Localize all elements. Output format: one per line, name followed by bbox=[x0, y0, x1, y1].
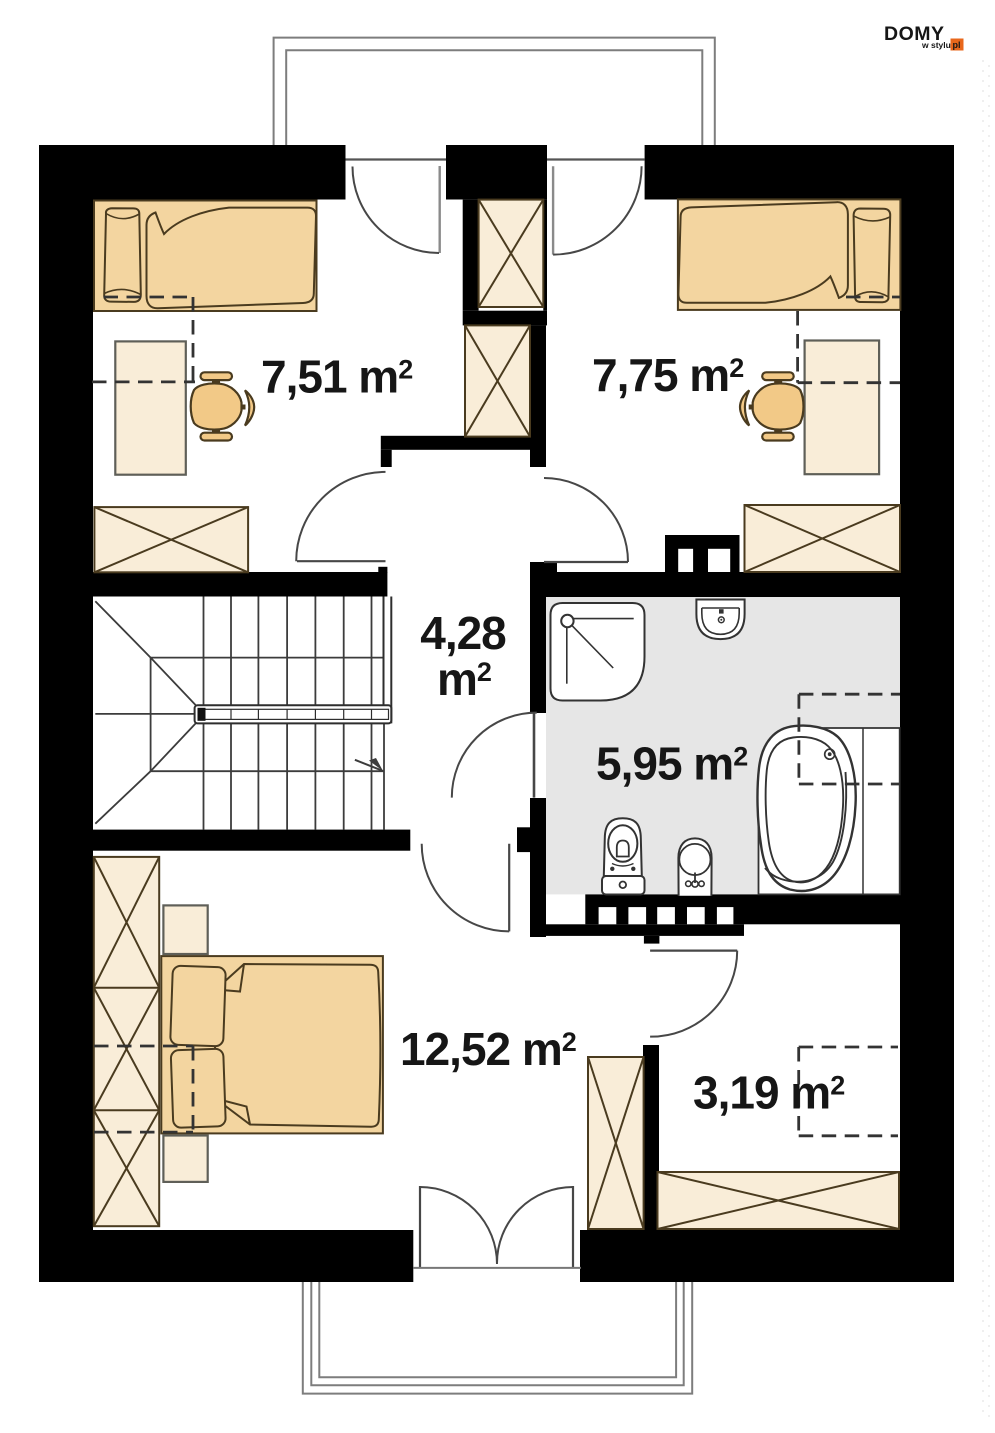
svg-text:7,51 m2: 7,51 m2 bbox=[261, 350, 412, 402]
svg-text:w stylu: w stylu bbox=[921, 40, 951, 50]
svg-text:5,95 m2: 5,95 m2 bbox=[596, 737, 747, 789]
svg-text:pl: pl bbox=[953, 40, 961, 50]
svg-text:4,28: 4,28 bbox=[420, 607, 506, 659]
svg-text:7,75 m2: 7,75 m2 bbox=[592, 349, 743, 401]
svg-text:3,19 m2: 3,19 m2 bbox=[693, 1067, 844, 1119]
svg-text:12,52 m2: 12,52 m2 bbox=[400, 1023, 576, 1075]
